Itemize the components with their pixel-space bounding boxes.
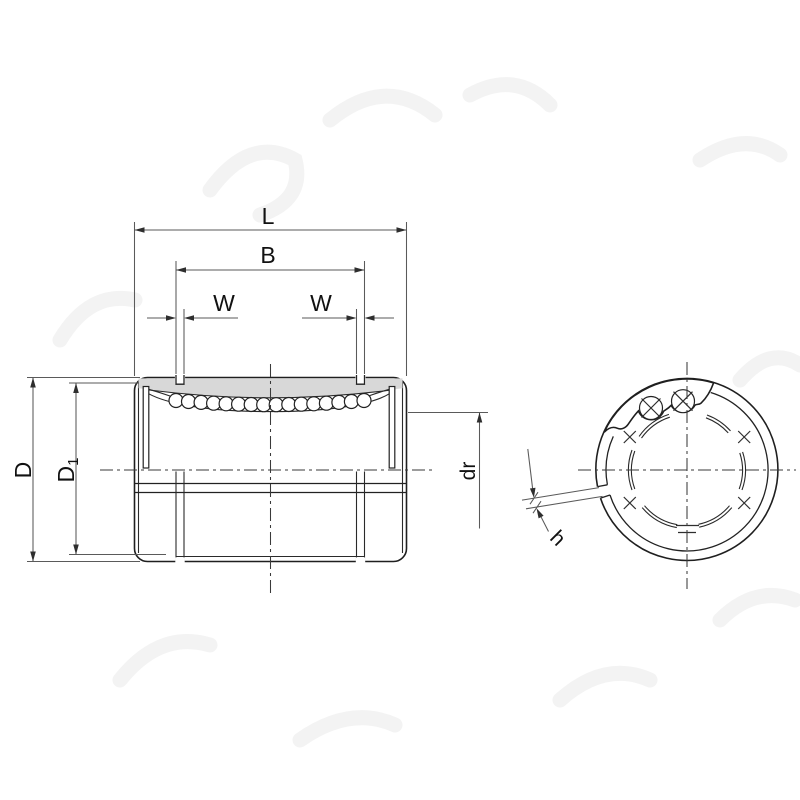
end-view [578,362,796,589]
label-B: B [260,242,275,268]
label-dr: dr [457,462,480,481]
right-seal-plate [389,387,395,469]
label-D: D [10,462,36,479]
dim-D1-lines [69,383,166,555]
label-W-right: W [310,290,332,316]
slit-edges [598,485,611,498]
left-seal-plate [143,387,149,469]
label-h: h [545,526,570,551]
right-bottom-notch-fill [356,557,365,563]
side-section-view [100,364,432,593]
bearing-drawing-svg: L B W W D D1 dr h [0,0,800,800]
technical-drawing-canvas: L B W W D D1 dr h [0,0,800,800]
left-bottom-notch-fill [175,557,184,563]
label-L: L [262,203,275,229]
label-D1: D1 [53,458,82,483]
label-W-left: W [213,290,235,316]
dim-D-lines [27,378,140,562]
